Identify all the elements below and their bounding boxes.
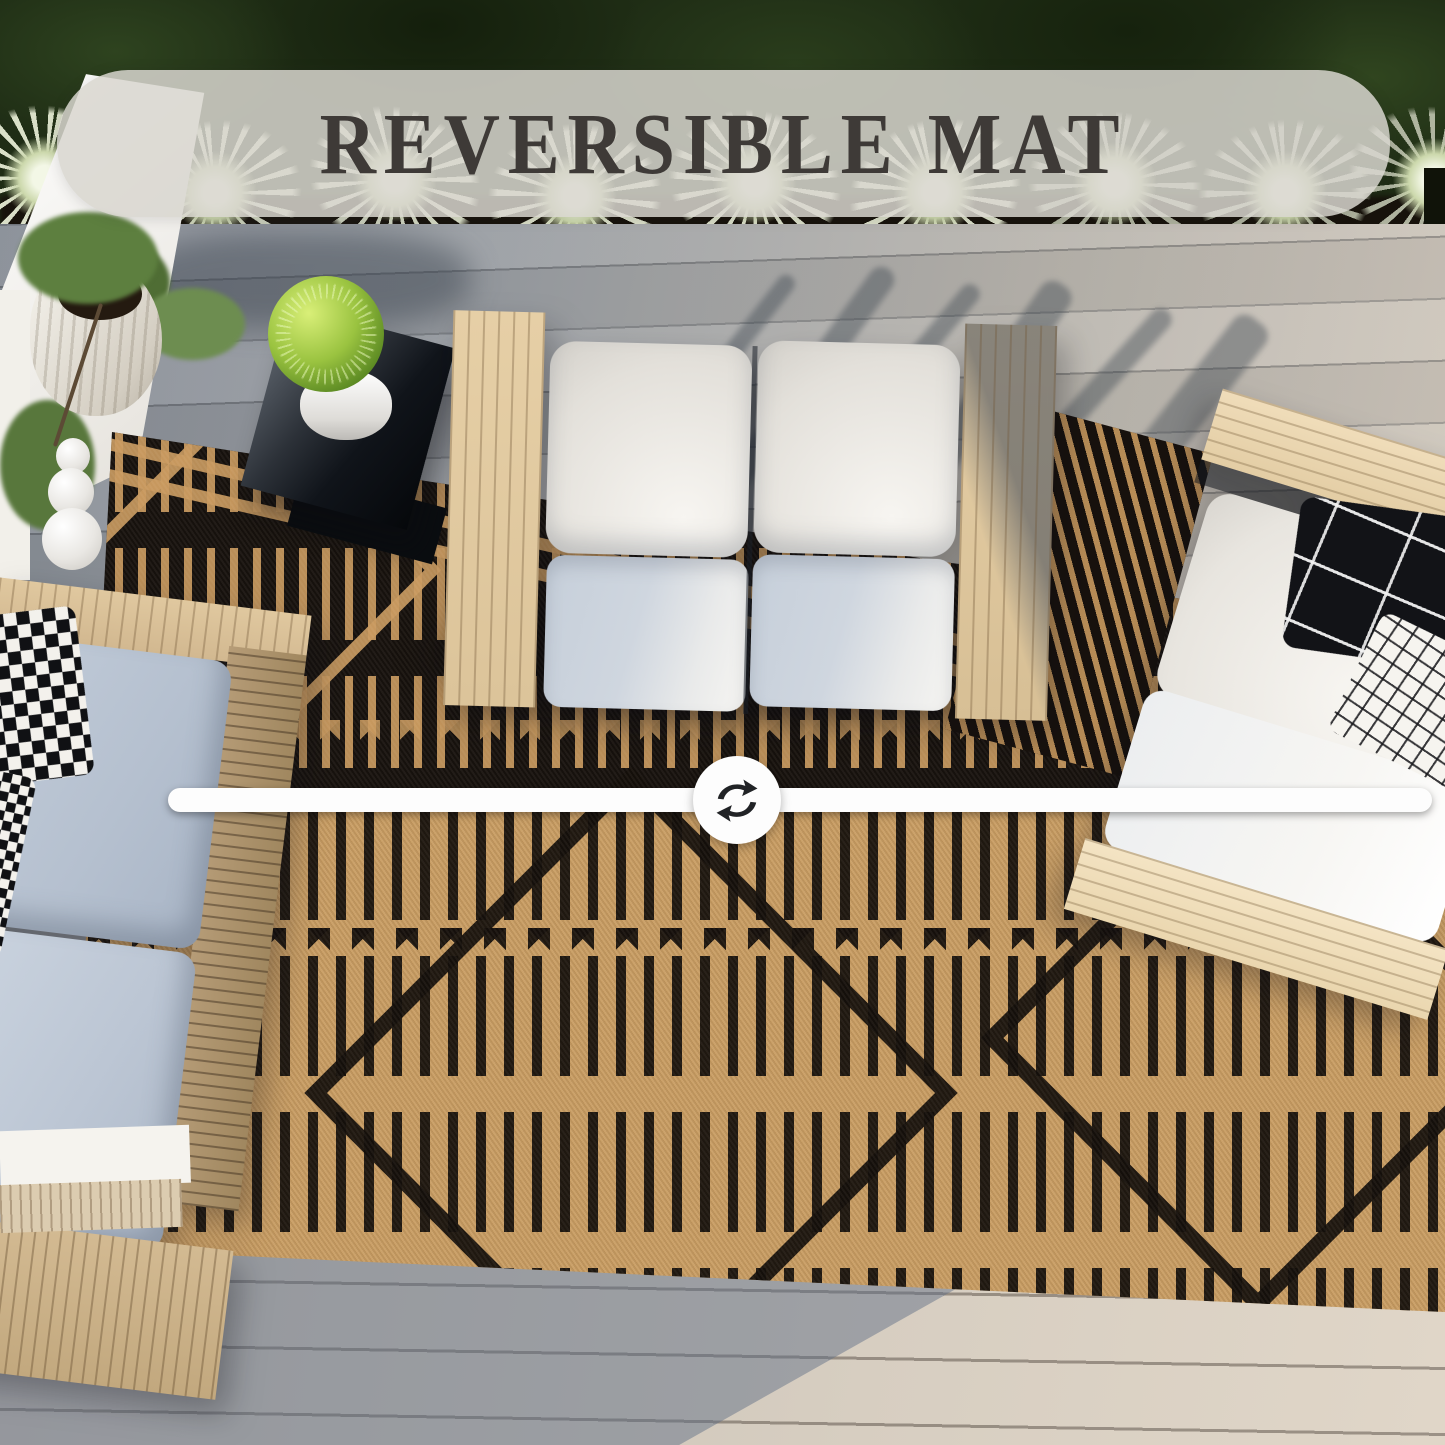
title-banner: REVERSIBLE MAT [57,70,1390,217]
loveseat-arm-wood [443,310,545,707]
loveseat-arm-wood [955,324,1057,721]
back-cushion [753,340,960,557]
divider-bar [168,788,1432,812]
seat-cushion [543,555,749,712]
divider-circle [693,756,781,844]
center-loveseat [443,310,1057,734]
sofa-front-wood [0,1211,234,1400]
seat-cushion [749,554,955,711]
planter-foliage [18,212,158,304]
patio-product-photo: REVERSIBLE MAT [0,0,1445,1445]
planter-box-wood [0,1179,183,1233]
swap-arrows-icon [705,768,769,832]
ball-plant [268,276,384,392]
back-cushion [545,341,752,558]
banner-title: REVERSIBLE MAT [320,93,1128,194]
sculpture-vase [42,508,102,570]
